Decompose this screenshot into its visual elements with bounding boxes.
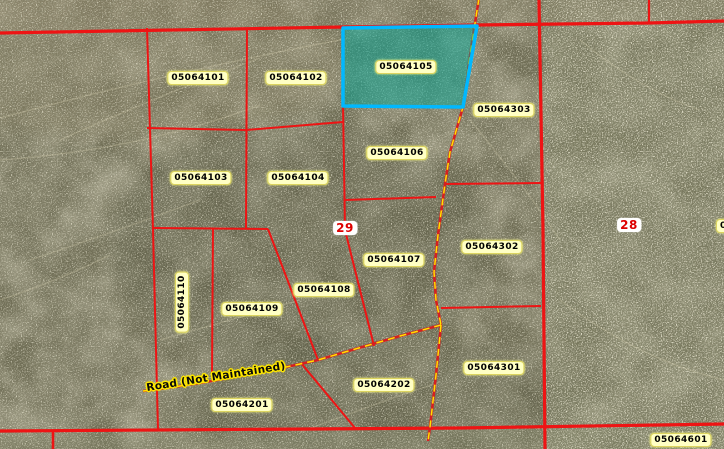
parcel-label-05064601[interactable]: 05064601 [650, 433, 711, 447]
parcel-label-05064301[interactable]: 05064301 [463, 361, 524, 375]
parcel-label-05064201[interactable]: 05064201 [211, 398, 272, 412]
section-label-28: 28 [617, 218, 641, 232]
parcel-label-05064103[interactable]: 05064103 [170, 171, 231, 185]
map-viewport[interactable]: 0506410105064102050641050506430305064103… [0, 0, 724, 449]
parcel-label-05064202[interactable]: 05064202 [353, 378, 414, 392]
parcel-label-05064106[interactable]: 05064106 [366, 146, 427, 160]
map-label-layer: 0506410105064102050641050506430305064103… [0, 0, 724, 449]
parcel-label-partial-right-edge[interactable]: 0 [716, 219, 724, 233]
parcel-label-05064303[interactable]: 05064303 [473, 103, 534, 117]
parcel-label-05064101[interactable]: 05064101 [167, 71, 228, 85]
section-label-29: 29 [333, 221, 357, 235]
parcel-label-05064104[interactable]: 05064104 [267, 171, 328, 185]
parcel-label-05064302[interactable]: 05064302 [461, 240, 522, 254]
parcel-label-05064108[interactable]: 05064108 [293, 283, 354, 297]
road-label: Road (Not Maintained) [146, 360, 287, 394]
parcel-label-05064109[interactable]: 05064109 [221, 302, 282, 316]
parcel-label-05064102[interactable]: 05064102 [265, 71, 326, 85]
parcel-label-05064105[interactable]: 05064105 [375, 60, 436, 74]
parcel-label-05064107[interactable]: 05064107 [363, 253, 424, 267]
parcel-label-05064110[interactable]: 05064110 [175, 271, 189, 332]
